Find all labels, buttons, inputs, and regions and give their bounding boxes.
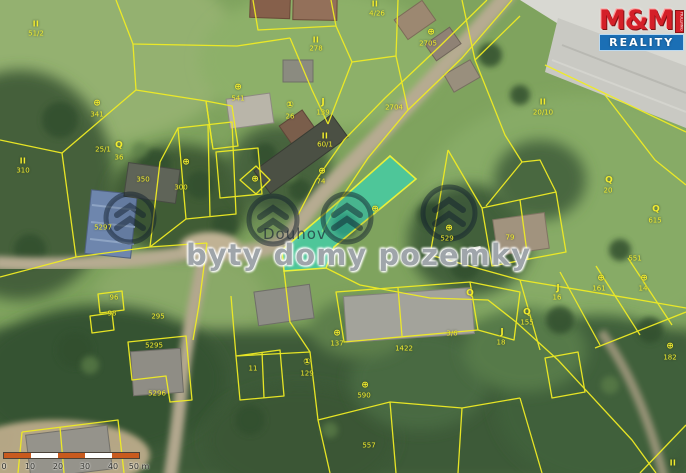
cadastral-map[interactable]: II51/2⊕341II31025/1Q36350300⊕52972955295… bbox=[0, 0, 686, 473]
aerial-imagery bbox=[0, 0, 686, 473]
